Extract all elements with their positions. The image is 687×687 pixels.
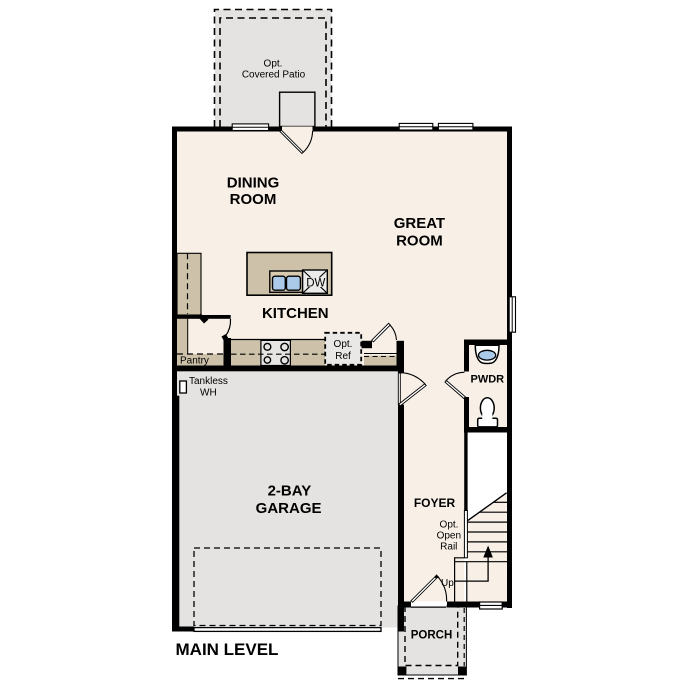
svg-text:Tankless: Tankless <box>189 376 228 387</box>
svg-text:Opt.: Opt. <box>264 58 283 69</box>
svg-text:Rail: Rail <box>440 542 457 553</box>
svg-text:2-BAY: 2-BAY <box>268 482 312 499</box>
svg-text:DINING: DINING <box>227 175 280 192</box>
svg-text:GARAGE: GARAGE <box>256 500 322 517</box>
svg-text:Pantry: Pantry <box>180 356 209 367</box>
svg-text:DW: DW <box>306 277 325 289</box>
svg-text:Ref: Ref <box>335 351 351 362</box>
svg-text:PORCH: PORCH <box>411 629 453 641</box>
svg-text:GREAT: GREAT <box>394 215 445 232</box>
svg-text:WH: WH <box>200 388 217 399</box>
svg-text:FOYER: FOYER <box>414 496 456 510</box>
svg-text:ROOM: ROOM <box>396 233 443 250</box>
svg-text:Opt.: Opt. <box>440 520 459 531</box>
svg-text:Up: Up <box>441 578 454 589</box>
svg-text:Open: Open <box>437 531 461 542</box>
svg-text:KITCHEN: KITCHEN <box>262 305 329 322</box>
svg-text:Opt.: Opt. <box>334 339 353 350</box>
svg-text:Covered Patio: Covered Patio <box>242 70 306 81</box>
svg-text:PWDR: PWDR <box>470 373 504 385</box>
svg-text:MAIN LEVEL: MAIN LEVEL <box>176 640 279 659</box>
svg-text:ROOM: ROOM <box>230 191 277 208</box>
